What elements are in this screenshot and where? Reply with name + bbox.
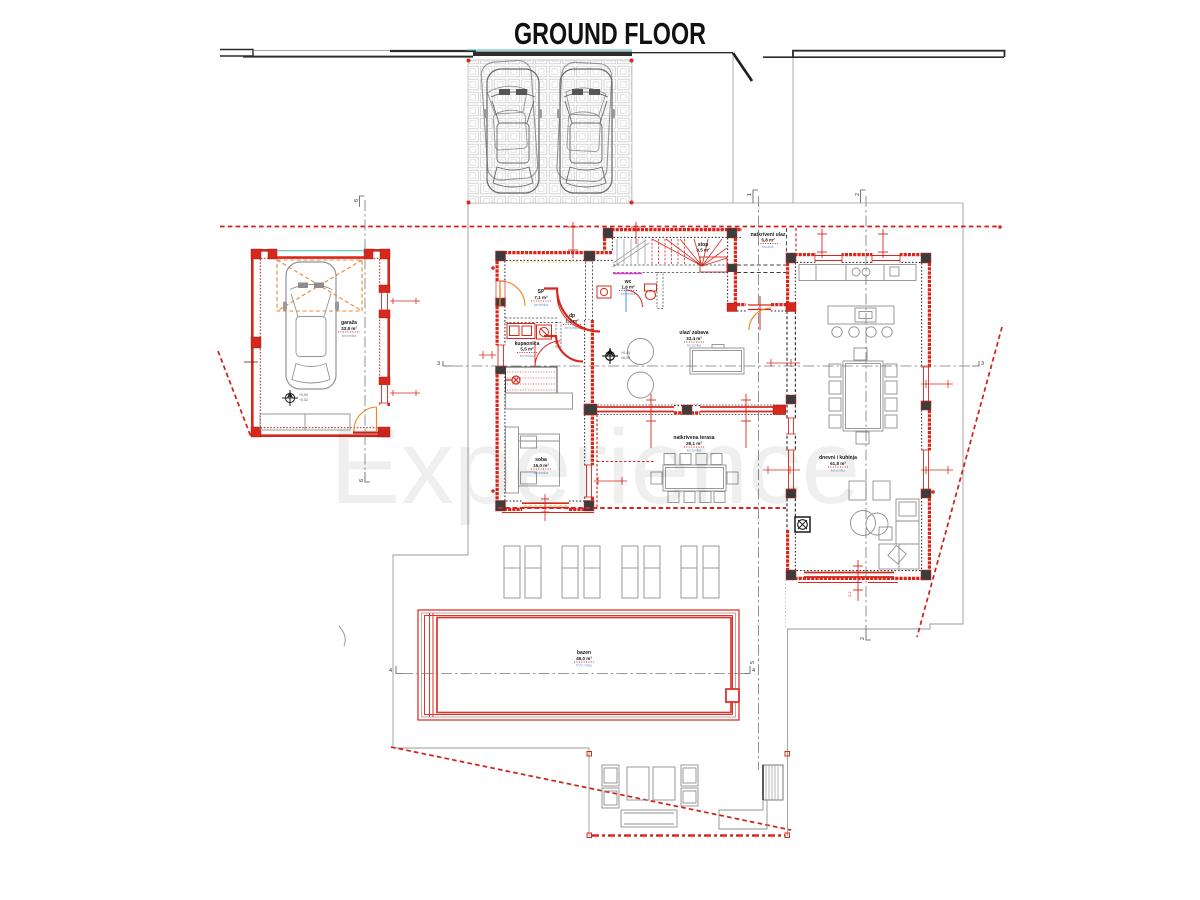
svg-text:keramika: keramika: [565, 326, 580, 330]
svg-text:2: 2: [860, 637, 866, 640]
svg-text:4: 4: [752, 668, 755, 674]
svg-text:7,1 m²: 7,1 m²: [534, 295, 548, 300]
svg-text:5,5 m²: 5,5 m²: [520, 347, 534, 352]
svg-text:±0,00: ±0,00: [621, 356, 630, 360]
svg-text:2,2: 2,2: [847, 591, 852, 597]
svg-text:PVC folija: PVC folija: [576, 664, 592, 668]
svg-text:48,0 m²: 48,0 m²: [576, 656, 592, 661]
svg-text:1: 1: [747, 193, 753, 196]
svg-text:3: 3: [437, 361, 440, 367]
svg-text:keramika: keramika: [342, 334, 357, 338]
svg-text:+0,45: +0,45: [621, 351, 630, 355]
svg-text:3: 3: [981, 361, 984, 367]
svg-text:keramika: keramika: [520, 354, 535, 358]
svg-text:keramika: keramika: [621, 292, 636, 296]
svg-text:5: 5: [750, 661, 756, 664]
svg-text:−0,02: −0,02: [299, 398, 308, 402]
svg-text:keramika: keramika: [534, 303, 549, 307]
svg-text:2: 2: [855, 193, 861, 196]
svg-text:keramika: keramika: [687, 344, 702, 348]
svg-text:33,4 m²: 33,4 m²: [686, 336, 702, 341]
svg-text:1,2 m²: 1,2 m²: [565, 319, 579, 324]
svg-text:4: 4: [389, 668, 392, 674]
svg-text:5,8 m²: 5,8 m²: [761, 238, 775, 243]
svg-text:33,8 m²: 33,8 m²: [341, 326, 357, 331]
svg-text:Experience: Experience: [330, 408, 860, 526]
svg-text:1,6 m²: 1,6 m²: [621, 285, 635, 290]
svg-text:tucanik: tucanik: [762, 245, 774, 249]
svg-text:6: 6: [354, 199, 360, 202]
svg-text:+0,00: +0,00: [299, 393, 308, 397]
svg-text:3,5 m²: 3,5 m²: [696, 248, 710, 253]
svg-text:GROUND FLOOR: GROUND FLOOR: [514, 17, 706, 51]
